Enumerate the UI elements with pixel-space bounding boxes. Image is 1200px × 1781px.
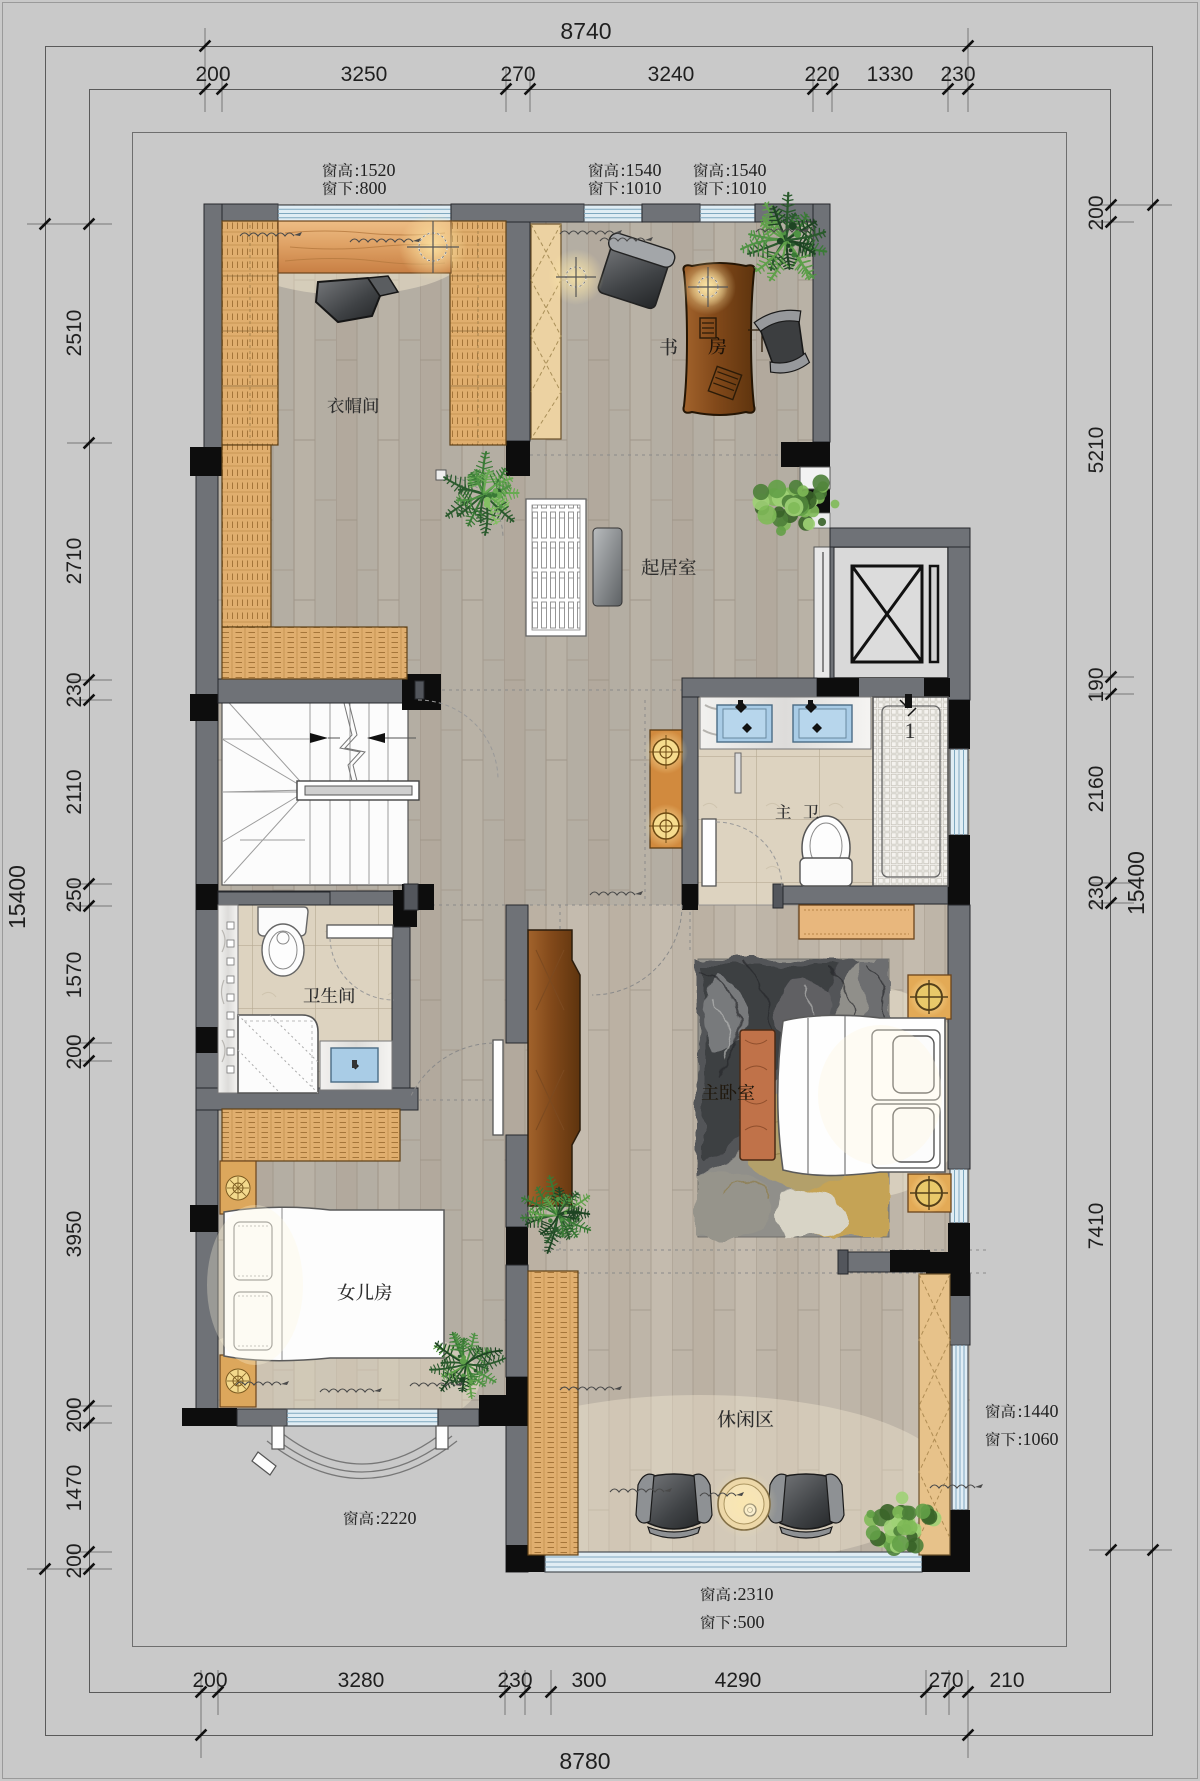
svg-text:7410: 7410 — [1085, 1203, 1108, 1250]
svg-text:3950: 3950 — [63, 1211, 86, 1258]
svg-text:200: 200 — [63, 1034, 86, 1069]
svg-text:2110: 2110 — [63, 769, 86, 814]
svg-text:230: 230 — [1085, 875, 1108, 910]
svg-text:15400: 15400 — [1123, 851, 1149, 915]
svg-text::2310: :2310 — [733, 1584, 774, 1604]
svg-text::1540: :1540 — [726, 160, 767, 180]
svg-text::500: :500 — [733, 1612, 765, 1632]
svg-text:200: 200 — [195, 63, 230, 86]
svg-text:250: 250 — [63, 877, 86, 912]
svg-text:8780: 8780 — [559, 1748, 610, 1774]
svg-text:210: 210 — [989, 1669, 1024, 1692]
svg-text:200: 200 — [63, 1543, 86, 1578]
svg-text:300: 300 — [571, 1669, 606, 1692]
svg-text:230: 230 — [940, 63, 975, 86]
svg-text:200: 200 — [63, 1397, 86, 1432]
svg-text:2160: 2160 — [1085, 766, 1108, 813]
svg-text:220: 220 — [804, 63, 839, 86]
svg-text:200: 200 — [192, 1669, 227, 1692]
svg-text:270: 270 — [500, 63, 535, 86]
svg-text:2710: 2710 — [63, 538, 86, 585]
svg-text:8740: 8740 — [560, 18, 611, 44]
svg-text::1060: :1060 — [1018, 1429, 1059, 1449]
svg-text:190: 190 — [1085, 667, 1108, 702]
svg-text::800: :800 — [355, 178, 387, 198]
svg-text:1330: 1330 — [867, 63, 914, 86]
svg-text:15400: 15400 — [4, 865, 30, 929]
svg-text:3280: 3280 — [338, 1669, 385, 1692]
svg-text:270: 270 — [928, 1669, 963, 1692]
svg-text:230: 230 — [497, 1669, 532, 1692]
svg-text::1540: :1540 — [621, 160, 662, 180]
svg-text:4290: 4290 — [715, 1669, 762, 1692]
svg-text:2510: 2510 — [63, 310, 86, 357]
svg-text::1520: :1520 — [355, 160, 396, 180]
svg-text::1440: :1440 — [1018, 1401, 1059, 1421]
svg-text:200: 200 — [1085, 195, 1108, 230]
svg-text:3250: 3250 — [341, 63, 388, 86]
svg-text::2220: :2220 — [376, 1508, 417, 1528]
svg-text:3240: 3240 — [648, 63, 695, 86]
svg-text::1010: :1010 — [726, 178, 767, 198]
svg-text:1: 1 — [905, 718, 916, 743]
svg-text:230: 230 — [63, 672, 86, 707]
svg-text:1470: 1470 — [63, 1465, 86, 1512]
svg-text:5210: 5210 — [1085, 427, 1108, 474]
svg-text:1570: 1570 — [63, 952, 86, 999]
svg-text::1010: :1010 — [621, 178, 662, 198]
